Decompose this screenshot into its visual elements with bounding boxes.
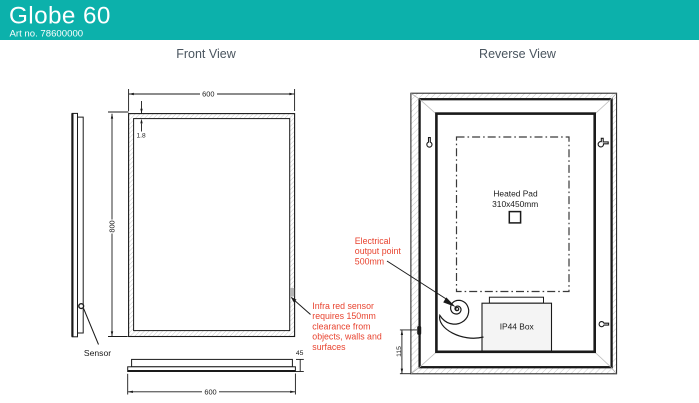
svg-text:Electrical: Electrical xyxy=(355,236,391,246)
svg-text:45: 45 xyxy=(296,350,304,357)
svg-text:Globe 60: Globe 60 xyxy=(9,3,111,30)
svg-text:115: 115 xyxy=(396,346,403,357)
svg-text:IP44 Box: IP44 Box xyxy=(500,322,535,332)
svg-text:Front View: Front View xyxy=(176,47,236,61)
svg-text:Infra red sensor: Infra red sensor xyxy=(312,301,374,311)
svg-text:output point: output point xyxy=(355,246,402,256)
svg-text:310x450mm: 310x450mm xyxy=(492,199,538,209)
svg-text:Reverse View: Reverse View xyxy=(479,47,557,61)
svg-text:clearance from: clearance from xyxy=(312,321,370,331)
svg-text:1.8: 1.8 xyxy=(137,133,146,140)
svg-text:Art no. 78600000: Art no. 78600000 xyxy=(10,28,84,39)
svg-text:objects, walls and: objects, walls and xyxy=(312,332,382,342)
svg-text:500mm: 500mm xyxy=(355,256,384,266)
svg-text:requires 150mm: requires 150mm xyxy=(312,311,376,321)
svg-text:Sensor: Sensor xyxy=(84,348,111,358)
svg-text:800: 800 xyxy=(108,220,117,232)
svg-text:600: 600 xyxy=(202,90,214,99)
svg-text:surfaces: surfaces xyxy=(312,342,346,352)
svg-text:Heated Pad: Heated Pad xyxy=(493,189,538,199)
svg-text:600: 600 xyxy=(204,388,216,397)
